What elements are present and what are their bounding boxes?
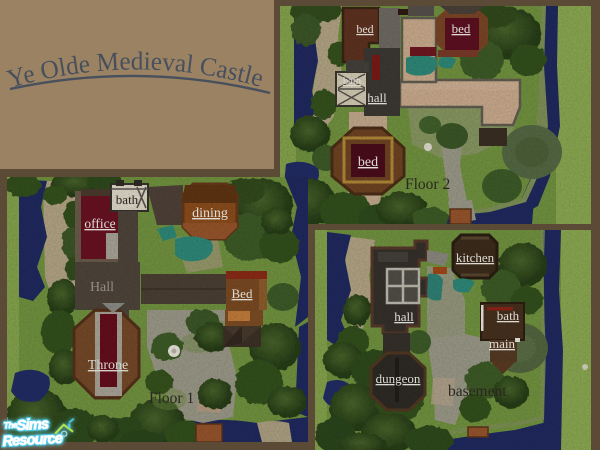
svg-text:Ye Olde Medieval Castle: Ye Olde Medieval Castle [4,46,267,93]
svg-text:Resource: Resource [2,431,63,450]
